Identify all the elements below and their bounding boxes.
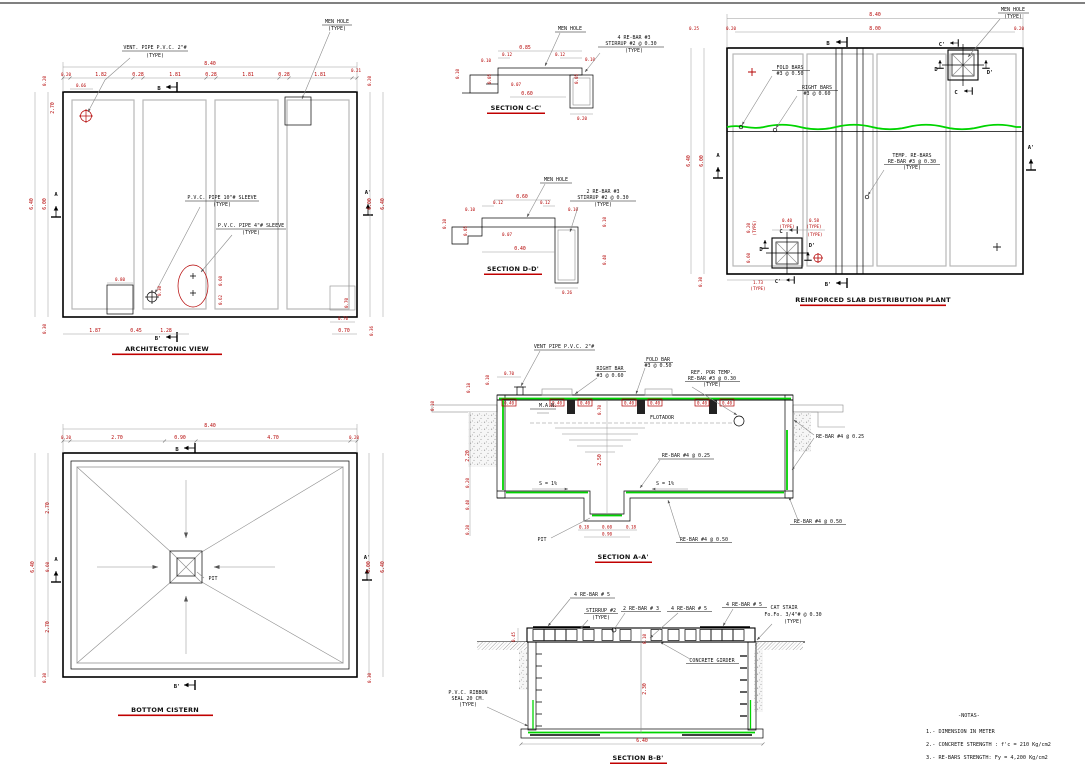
rebar5-label: 4 RE-BAR # 5	[574, 592, 610, 598]
dim-text: (TYPE)	[779, 224, 794, 229]
dim-text: 0.30	[698, 276, 703, 287]
dim-text: 6.40	[686, 155, 692, 167]
backfill-right	[754, 650, 763, 712]
slope-label: S = 1%	[656, 481, 674, 487]
stirrup-cells	[533, 630, 744, 641]
dim-text: 0.05	[487, 73, 492, 84]
dim-text: 1.81	[242, 72, 254, 78]
dim-text: 0.36	[369, 325, 374, 336]
men-hole-hatch	[107, 285, 133, 314]
dim-text: (TYPE)	[807, 232, 822, 237]
pvc4-label: P.V.C. PIPE 4"# SLEEVE	[218, 223, 284, 229]
cad-drawing: VENT. PIPE P.V.C. 2"# (TYPE) MEN HOLE (T…	[0, 0, 1085, 767]
svg-text:0.40: 0.40	[697, 401, 708, 406]
dim-text: 0.45	[511, 631, 516, 642]
dim-text: 0.60	[746, 252, 751, 263]
dim-text: 0.60	[45, 561, 50, 572]
type-label: (TYPE)	[242, 230, 260, 236]
flotador-label: FLOTADOR	[650, 415, 675, 421]
dim-text: 2.70	[45, 502, 51, 514]
cut-letter-c-prime: C'	[939, 42, 946, 48]
view-title: SECTION D-D'	[487, 265, 539, 273]
water-level-lines	[555, 428, 645, 452]
slab-hatch	[482, 218, 555, 227]
cut-symbol	[166, 82, 177, 92]
cut-letter-a: A	[716, 153, 720, 159]
cut-letter-c: C	[954, 90, 957, 96]
leader-line	[742, 76, 772, 125]
leader-line	[789, 497, 798, 520]
stirrup-label: STIRRUP #2	[586, 608, 616, 614]
note-item: 2.- CONCRETE STRENGTH : f'c = 210 Kg/cm2	[926, 742, 1051, 748]
cat-stair-rungs	[740, 656, 747, 716]
cut-symbol	[982, 60, 990, 68]
svg-text:0.40: 0.40	[650, 401, 661, 406]
dim-text: 0.40	[782, 218, 793, 223]
dim-text: 0.20	[465, 477, 470, 488]
dim-text: 0.07	[511, 82, 522, 87]
dim-text: 0.20	[577, 116, 588, 121]
leader-line	[650, 613, 678, 638]
pit-label: PIT	[208, 576, 217, 582]
leader-line	[88, 58, 130, 112]
dim-text: 0.12	[540, 200, 551, 205]
dim-text: 0.28	[278, 72, 290, 78]
stirrup-outline	[558, 230, 575, 280]
rebar50-label: RE-BAR #4 @ 0.50	[680, 537, 728, 543]
cut-symbol	[51, 571, 61, 582]
dim-text: 0.20	[61, 72, 72, 77]
dim-text: 2.30	[642, 683, 648, 695]
slope-label: S = 1%	[539, 481, 557, 487]
dim-text: 6.00	[42, 198, 48, 210]
red-cross-mark	[748, 68, 756, 76]
slab-opening	[645, 389, 672, 395]
svg-text:0.40: 0.40	[722, 401, 733, 406]
dim-text: 0.20	[1014, 26, 1025, 31]
dim-text: 6.40	[636, 738, 648, 744]
dim-text: (TYPE)	[752, 220, 757, 235]
rebar50-label: RE-BAR #4 @ 0.50	[794, 519, 842, 525]
cut-symbol	[786, 276, 794, 284]
backfill-left	[468, 412, 497, 467]
section-a-a: 0.40 0.40 0.40 0.40 0.40 0.40 0.40 M.A.N…	[430, 344, 864, 563]
leader-line	[968, 19, 1000, 57]
svg-text:0.40: 0.40	[504, 401, 515, 406]
pit-label: PIT	[537, 537, 546, 543]
dim-text: 0.85	[519, 45, 531, 51]
floor-inner-line	[497, 491, 793, 514]
slab-outer-wall	[727, 48, 1023, 274]
dim-text: 0.20	[465, 524, 470, 535]
slab-opening	[542, 389, 572, 395]
cut-symbol	[1026, 159, 1036, 170]
drop-beam	[637, 400, 645, 414]
leader-dot	[612, 628, 616, 632]
cistern-outer-wall	[63, 453, 357, 677]
svg-text:0.40: 0.40	[624, 401, 635, 406]
right-bar-label: RIGHT BAR	[596, 366, 624, 372]
dim-text: 1.81	[314, 72, 326, 78]
dim-text: 0.60	[218, 275, 223, 286]
dim-text: 0.45	[130, 328, 142, 334]
cut-letter-b: B	[157, 86, 161, 92]
beam-concrete	[555, 227, 578, 283]
dim-text: 0.18	[626, 525, 637, 530]
dim-text: 0.07	[502, 232, 513, 237]
dim-text: 0.60	[521, 91, 533, 97]
dim-text: 0.18	[466, 382, 471, 393]
dim-text: 0.05	[574, 73, 579, 84]
note-item: 1.- DIMENSION IN METER	[926, 729, 996, 735]
architectonic-view: VENT. PIPE P.V.C. 2"# (TYPE) MEN HOLE (T…	[29, 19, 386, 355]
men-hole-label: MEN HOLE	[558, 26, 582, 32]
type-label: (TYPE)	[703, 382, 721, 388]
vent-pipe-label: VENT. PIPE P.V.C. 2"#	[123, 45, 186, 51]
cistern-floor-edge	[77, 467, 343, 663]
dim-text: 0.40	[602, 254, 607, 265]
type-label: (TYPE)	[784, 619, 802, 625]
title-underline	[484, 274, 542, 276]
drop-beam	[567, 400, 575, 414]
dim-text: 0.10	[481, 58, 492, 63]
cut-letter-a: A	[54, 192, 58, 198]
cut-symbol	[184, 680, 195, 690]
title-underline	[112, 354, 222, 356]
dim-text: 0.40	[514, 246, 526, 252]
vent-pipe-stub	[517, 387, 523, 395]
dim-text: 0.30	[42, 323, 47, 334]
leader-line	[776, 96, 797, 128]
dim-text: 0.30	[367, 672, 372, 683]
fold-bar-label2: #3 @ 0.50	[644, 363, 671, 369]
dim-text: 6.40	[30, 561, 36, 573]
dim-text: 0.66	[76, 83, 87, 88]
title-underline	[487, 113, 545, 115]
leader-line	[575, 378, 597, 394]
leader-line	[548, 599, 570, 626]
dim-text: 0.21	[351, 68, 362, 73]
pvc-4-sleeve-ellipse	[178, 265, 208, 307]
leader-line	[585, 53, 600, 72]
man-level-label: M.A.N.	[539, 403, 557, 409]
dim-text: 0.20	[726, 26, 737, 31]
slab-hatch	[498, 68, 582, 75]
cut-letter-a-prime: A'	[364, 555, 371, 561]
dim-text: 2.50	[597, 454, 603, 466]
section-d-d: 0.60 0.12 0.12 0.10 0.10 0.10 0.05 0.07 …	[442, 177, 636, 295]
left-wall	[528, 642, 536, 730]
dim-text: 1.82	[95, 72, 107, 78]
notes-block: -NOTAS- 1.- DIMENSION IN METER 2.- CONCR…	[926, 713, 1051, 761]
cross-mark	[993, 243, 1001, 251]
dim-text: 2.70	[111, 435, 123, 441]
dim-text: 0.10	[465, 207, 476, 212]
wall-rebar-ticks	[536, 654, 542, 726]
sleeve-cross-marks	[190, 273, 196, 296]
cad-sheet: VENT. PIPE P.V.C. 2"# (TYPE) MEN HOLE (T…	[0, 0, 1085, 767]
dim-text: 6.00	[699, 155, 705, 167]
cut-symbol	[836, 278, 847, 288]
dim-text: 0.70	[597, 404, 602, 415]
svg-text:0.40: 0.40	[580, 401, 591, 406]
view-title: SECTION C-C'	[491, 104, 542, 112]
dim-text: 8.40	[204, 423, 216, 429]
rebar5-label: 4 RE-BAR # 5	[726, 602, 762, 608]
cistern-inner-wall	[71, 461, 349, 669]
rebar25-label: RE-BAR #4 @ 0.25	[662, 453, 710, 459]
leader-line	[521, 351, 540, 386]
dim-text: 0.90	[174, 435, 186, 441]
cut-symbol	[184, 443, 195, 453]
view-title: SECTION A-A'	[597, 553, 648, 561]
dim-text: 0.28	[205, 72, 217, 78]
men-hole-hatch	[285, 97, 311, 125]
girder-label: CONCRETE GIRDER	[689, 658, 735, 664]
right-bar-label2: #3 @ 0.60	[596, 373, 623, 379]
men-hole-label: MEN HOLE	[544, 177, 568, 183]
type-label: (TYPE)	[625, 48, 643, 54]
section-b-b: 4 RE-BAR # 5 STIRRUP #2 (TYPE) 2 RE-BAR …	[448, 592, 821, 764]
view-title: BOTTOM CISTERN	[131, 706, 199, 714]
leader-line	[636, 368, 645, 394]
rebar-label: STIRRUP #2 @ 0.30	[577, 195, 628, 201]
men-hole-label: MEN HOLE	[1001, 7, 1025, 13]
dim-text: (TYPE)	[750, 286, 765, 291]
section-c-c: 0.85 0.12 0.12 0.10 0.10 0.10 0.05 0.05 …	[455, 26, 664, 121]
fold-bars-label2: #3 @ 0.50	[776, 71, 803, 77]
backfill-left	[519, 650, 528, 690]
float-ball	[734, 416, 744, 426]
soil-hatch-right	[755, 642, 803, 650]
dim-text: 0.10	[430, 400, 435, 411]
dim-text: 1.28	[160, 328, 172, 334]
right-bars-label2: #3 @ 0.60	[803, 91, 830, 97]
dim-text: 0.10	[602, 216, 607, 227]
leader-line	[868, 170, 884, 195]
pvc10-label: P.V.C. PIPE 10"# SLEEVE	[187, 195, 256, 201]
cut-letter-b: B	[826, 41, 830, 47]
type-label: (TYPE)	[594, 202, 612, 208]
view-title: ARCHITECTONIC VIEW	[125, 345, 209, 353]
dim-text: 0.30	[157, 285, 162, 296]
leader-line	[487, 707, 528, 726]
dim-text: 0.25	[689, 26, 700, 31]
dim-text: 1.87	[89, 328, 101, 334]
cut-letter-a-prime: A'	[365, 190, 372, 196]
dim-text: 0.20	[746, 222, 751, 233]
cut-symbol	[964, 87, 972, 95]
dim-text: 0.10	[585, 57, 596, 62]
dim-text: (TYPE)	[806, 224, 821, 229]
title-underline	[610, 763, 667, 765]
rebar-edge-label: RE-BAR #4 @ 0.25	[816, 434, 864, 440]
dim-text: 0.20	[367, 75, 372, 86]
dim-text: 0.20	[61, 435, 72, 440]
rebar-label: STIRRUP #2 @ 0.30	[605, 41, 656, 47]
cut-letter-a-prime: A'	[1028, 145, 1035, 151]
dim-text: 0.10	[442, 218, 447, 229]
type-label: (TYPE)	[328, 26, 346, 32]
dim-text: 0.18	[579, 525, 590, 530]
type-label: (TYPE)	[592, 615, 610, 621]
dim-text: 0.40	[465, 499, 470, 510]
cut-letter-d-prime: D'	[809, 243, 816, 249]
corner-detail-square	[330, 286, 355, 310]
leader-line	[668, 500, 680, 538]
dim-text: 0.30	[42, 672, 47, 683]
cut-letter-b-prime: B'	[155, 336, 162, 342]
dim-text: 2.20	[465, 450, 471, 462]
vent-pipe-label: VENT PIPE P.V.C. 2"#	[534, 344, 594, 350]
dim-text: 0.10	[642, 633, 647, 644]
dim-text: 0.62	[218, 294, 223, 305]
cat-stair-label: CAT STAIR	[770, 605, 798, 611]
type-label: (TYPE)	[213, 202, 231, 208]
view-title: REINFORCED SLAB DISTRIBUTION PLANT	[795, 296, 951, 304]
dim-text: 0.70	[338, 328, 350, 334]
floor-slab	[521, 729, 763, 738]
notes-title: -NOTAS-	[958, 713, 980, 719]
dim-text: 0.28	[132, 72, 144, 78]
view-title: SECTION B-B'	[613, 754, 664, 762]
rebar3-label: 2 RE-BAR # 3	[623, 606, 659, 612]
leader-line	[660, 642, 690, 659]
slab-distribution-plan: C' C D D' C C' D D' 0.20 (TYPE) 0.40 (TY…	[686, 7, 1036, 306]
dim-text: 0.10	[485, 374, 490, 385]
bay-panel	[733, 54, 803, 266]
dim-text: 0.12	[502, 52, 513, 57]
dim-text: 6.40	[380, 198, 386, 210]
dim-text: 6.40	[29, 198, 35, 210]
dim-text: 1.81	[169, 72, 181, 78]
rebar5-label: 4 RE-BAR # 5	[671, 606, 707, 612]
bottom-cistern-plan: PIT B B' A A' 8.40 0.20 2.70 0.90 4.70 0…	[30, 423, 386, 716]
dim-text: 0.12	[555, 52, 566, 57]
cut-symbol	[51, 206, 61, 217]
dim-text: 6.00	[367, 198, 373, 210]
dim-text: 0.26	[562, 290, 573, 295]
dim-text: 0.90	[602, 532, 613, 537]
dim-text: 0.10	[455, 68, 460, 79]
dim-text: 6.00	[366, 561, 372, 573]
leader-line	[545, 33, 560, 66]
dim-text: 8.00	[869, 26, 881, 32]
dim-text: 0.70	[344, 297, 349, 308]
men-hole-label: MEN HOLE	[325, 19, 349, 25]
cut-letter-a: A	[54, 557, 58, 563]
soil-hatch-left	[477, 642, 527, 650]
cut-symbol	[950, 39, 958, 47]
title-underline	[118, 715, 213, 717]
soil-hatch-right	[793, 405, 843, 412]
leader-line	[757, 624, 772, 640]
dim-text: 4.70	[267, 435, 279, 441]
dim-text: 0.60	[516, 194, 528, 200]
rebar-green-floor	[506, 493, 784, 516]
cat-stair-label2: Fo.Fo. 3/4"# @ 0.30	[764, 612, 821, 618]
cut-letter-d-prime: D'	[987, 70, 994, 76]
dim-text: 0.70	[504, 371, 515, 376]
dim-text: 2.70	[50, 102, 56, 114]
type-label: (TYPE)	[459, 702, 477, 708]
leader-line	[302, 32, 330, 99]
type-label: (TYPE)	[903, 165, 921, 171]
type-label: (TYPE)	[1004, 14, 1022, 20]
note-item: 3.- RE-BARS STRENGTH: Fy = 4,200 Kg/cm2	[926, 755, 1048, 761]
dim-text: 0.20	[42, 75, 47, 86]
dim-text: 8.40	[204, 61, 216, 67]
cut-letter-b: B	[175, 447, 179, 453]
fold-bars-green-line	[727, 125, 1021, 130]
cut-letter-b-prime: B'	[174, 684, 181, 690]
bay-panel	[950, 54, 1016, 266]
dim-text: 0.20	[349, 435, 360, 440]
dim-text: 0.58	[809, 218, 820, 223]
leader-line	[723, 609, 733, 626]
cut-symbol	[713, 167, 723, 178]
dim-text: 0.05	[463, 225, 468, 236]
dim-text: 0.12	[493, 200, 504, 205]
bay-panel	[143, 100, 206, 309]
title-underline	[800, 305, 946, 307]
cut-letter-b-prime: B'	[825, 282, 832, 288]
dim-text: 0.80	[115, 277, 126, 282]
dim-text: 2.70	[45, 621, 51, 633]
dim-text: 0.70	[338, 316, 349, 321]
type-label: (TYPE)	[146, 53, 164, 59]
bay-panel	[287, 100, 349, 309]
cut-symbol	[836, 37, 847, 47]
dim-text: 0.60	[602, 525, 613, 530]
dim-text: 8.40	[869, 12, 881, 18]
floor-outer-line	[497, 498, 793, 521]
soil-hatch-left	[432, 405, 497, 412]
title-underline	[595, 562, 652, 564]
dim-text: 1.73	[753, 280, 764, 285]
leader-line	[615, 613, 625, 628]
dim-text: 6.40	[380, 561, 386, 573]
leader-line	[155, 207, 200, 293]
